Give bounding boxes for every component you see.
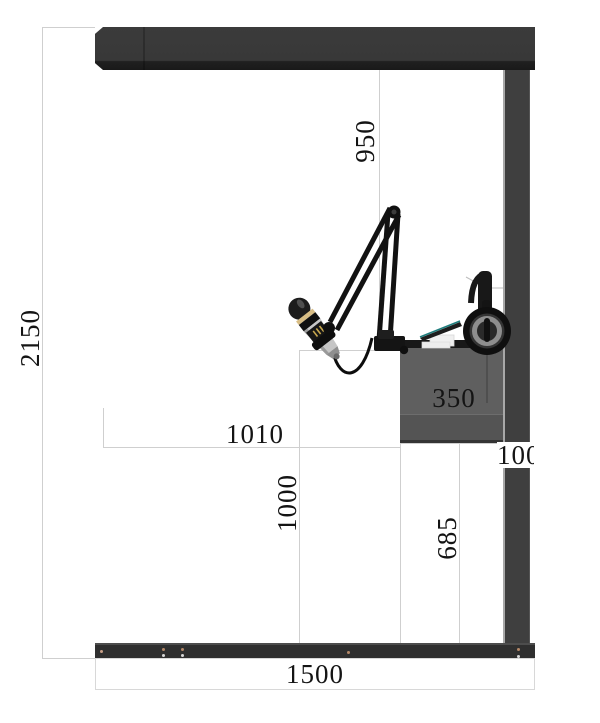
ext-tick-desktop-span: [103, 408, 104, 447]
ext-line-desk-bottom: [400, 443, 503, 444]
technical-drawing-canvas: 2150 950 1010 1000 685 350 100 1500: [0, 0, 600, 723]
rivet: [517, 648, 520, 651]
rivet: [100, 650, 103, 653]
mic-holder-joint: [323, 322, 335, 334]
dim-label-desktop-span: 1010: [200, 420, 310, 448]
rivet: [347, 651, 350, 654]
dim-label-base-width: 1500: [286, 660, 344, 688]
dim-label-under-desk: 685: [433, 493, 461, 583]
equipment-illustration: [270, 200, 515, 410]
clamp-knob: [400, 346, 408, 354]
bottom-beam: [95, 643, 535, 658]
base-width-band: 1500: [95, 658, 535, 690]
dim-label-desktop-height: 1000: [273, 448, 301, 558]
mic-boom-arm-icon: [330, 206, 408, 355]
paper-on-desk: [422, 342, 450, 348]
arm-base-pivot: [378, 330, 394, 339]
desk-lower-panel: [400, 415, 503, 440]
ext-line-top-left: [42, 27, 95, 28]
ext-line-desk-left-edge: [400, 443, 401, 643]
arm-lower-strut: [379, 213, 388, 340]
headphones-icon: [463, 271, 511, 355]
dim-label-overall-height: 2150: [16, 283, 44, 393]
arm-top-joint-hub: [392, 210, 397, 215]
desk-bottom-edge: [400, 440, 503, 443]
ear-cup-bar: [484, 318, 490, 342]
rivet: [162, 654, 165, 657]
rivet: [181, 648, 184, 651]
rivet: [181, 654, 184, 657]
dim-label-beam-to-desktop: 950: [351, 96, 379, 186]
top-beam: [95, 27, 535, 70]
dim-label-column-width: 100: [497, 442, 534, 468]
dim-label-desk-panel: 350: [409, 384, 499, 412]
rivet: [162, 648, 165, 651]
laptop-on-stand-icon: [420, 321, 462, 348]
ext-line-bottom-left: [42, 658, 95, 659]
